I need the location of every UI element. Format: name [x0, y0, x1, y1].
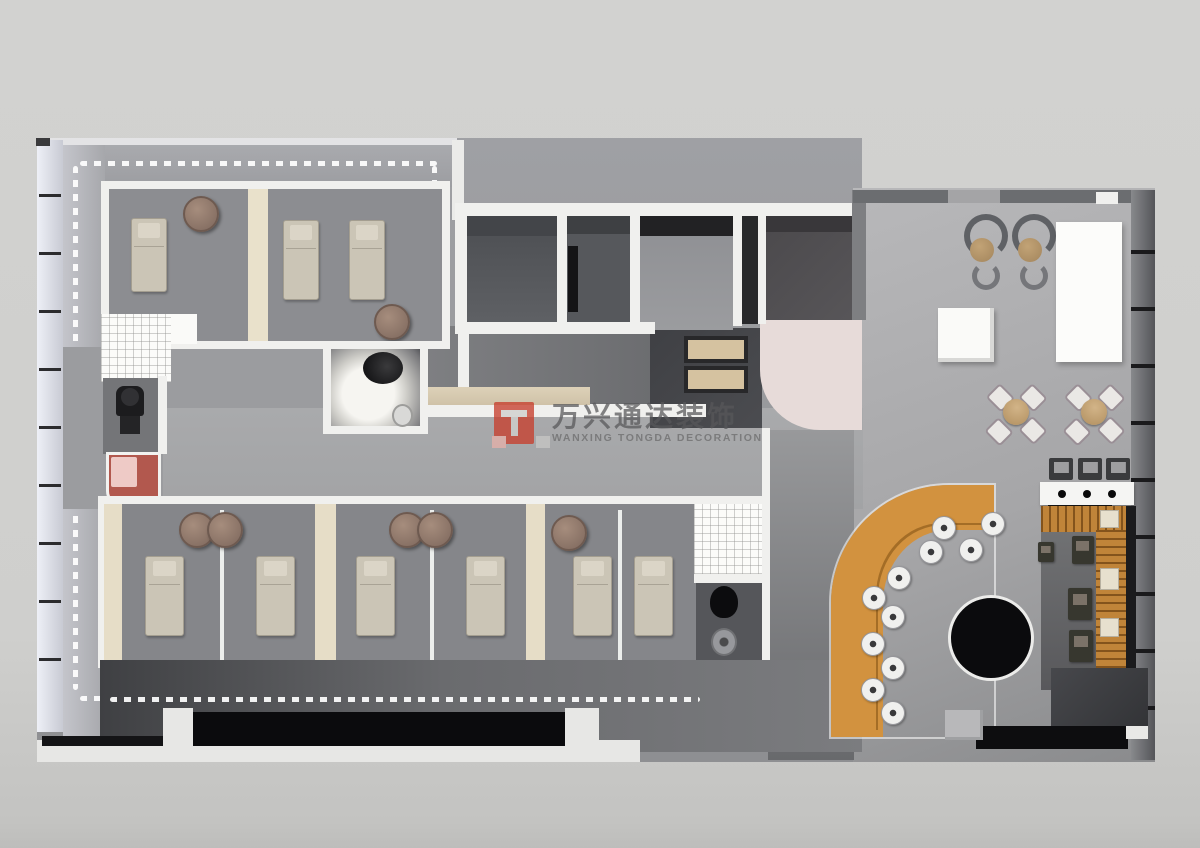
black-skirting	[42, 736, 164, 746]
tile-area	[694, 504, 762, 574]
booth-side-table	[862, 586, 886, 610]
stool	[207, 512, 243, 548]
bar-stool	[1106, 458, 1130, 480]
wall	[694, 574, 762, 583]
round-black-table	[948, 595, 1034, 681]
bar-seat	[1038, 542, 1054, 562]
red-desk-chair	[111, 457, 137, 487]
treatment-bed	[256, 556, 295, 636]
beige-column	[526, 504, 545, 660]
watermark: 万兴通达装饰 WANXING TONGDA DECORATION	[494, 402, 763, 444]
booth-side-table	[861, 632, 885, 656]
sink	[711, 628, 737, 656]
booth-side-table	[881, 701, 905, 725]
treatment-bed	[283, 220, 319, 300]
wall	[630, 216, 640, 330]
pendant-lamp	[363, 352, 403, 384]
tile-counter-ext	[171, 314, 197, 344]
office-chair-headrest	[121, 388, 139, 406]
led-strip-top	[80, 161, 437, 166]
bar-sink	[1108, 490, 1116, 498]
bar-mini-table	[1100, 510, 1119, 528]
lounge-chair-set	[1010, 214, 1054, 284]
gray-step	[945, 710, 983, 740]
bar-sink	[1058, 490, 1066, 498]
beige-column	[315, 504, 336, 660]
window-mullion-ticks-left	[39, 194, 61, 676]
booth-side-table	[959, 538, 983, 562]
tile-counter	[101, 314, 171, 382]
wall-post	[163, 708, 193, 754]
bar-seat	[1072, 536, 1094, 564]
side-ring-table	[972, 262, 1000, 290]
white-chip	[1126, 726, 1148, 739]
bar-seat	[1068, 588, 1092, 620]
watermark-logo-cut	[511, 410, 518, 436]
wall	[455, 322, 655, 334]
booth-side-table	[861, 678, 885, 702]
black-column	[742, 216, 758, 324]
watermark-subtitle: WANXING TONGDA DECORATION	[552, 432, 763, 444]
treatment-bed	[356, 556, 395, 636]
bar-back-strip	[1126, 506, 1136, 682]
recessed-niche	[193, 712, 565, 746]
booth-side-table	[881, 605, 905, 629]
reception-desk-white	[1056, 222, 1122, 362]
treatment-bed	[466, 556, 505, 636]
treatment-bed	[145, 556, 184, 636]
watermark-logo-chip	[492, 436, 506, 448]
gray-room-header	[640, 216, 733, 236]
chair-cushion	[970, 238, 994, 262]
partition-wall	[618, 510, 622, 660]
side-ring-table	[1020, 262, 1048, 290]
led-strip-bottom-band	[110, 697, 700, 702]
lounge-chair-set	[962, 214, 1006, 284]
washbasin	[392, 404, 413, 427]
wall	[455, 203, 467, 333]
black-platform-band	[976, 726, 1128, 749]
treatment-bed	[349, 220, 385, 300]
beige-column	[248, 189, 268, 341]
treatment-bed	[573, 556, 612, 636]
utility-room-header	[467, 216, 557, 236]
watermark-logo	[494, 402, 534, 444]
stool	[417, 512, 453, 548]
stool	[374, 304, 410, 340]
door-gap	[1096, 192, 1118, 204]
bar-mini-table	[1100, 618, 1119, 637]
booth-side-table	[881, 656, 905, 680]
section-divider-wall	[852, 190, 866, 320]
wall-corner-mark	[36, 138, 50, 146]
wall-post	[565, 708, 599, 754]
bar-stool	[1049, 458, 1073, 480]
bar-sink	[1083, 490, 1091, 498]
toilet	[710, 586, 738, 618]
stool	[183, 196, 219, 232]
dark-room-header	[766, 216, 852, 232]
beige-column	[104, 504, 122, 660]
bar-mini-table	[1100, 568, 1119, 590]
wardrobe	[568, 246, 578, 312]
treatment-bed	[131, 218, 167, 292]
wall	[158, 376, 167, 454]
booth-side-table	[932, 516, 956, 540]
wall	[758, 216, 766, 324]
wall	[557, 216, 567, 326]
watermark-title: 万兴通达装饰	[552, 402, 763, 432]
floorplan-render: 万兴通达装饰 WANXING TONGDA DECORATION	[0, 0, 1200, 848]
stool	[551, 515, 587, 551]
wall	[733, 216, 742, 326]
bar-stool	[1078, 458, 1102, 480]
chair-cushion	[1018, 238, 1042, 262]
booth-side-table	[981, 512, 1005, 536]
floor-mat	[684, 336, 748, 363]
square-table-white	[938, 308, 994, 362]
lounge-top-wall-light	[948, 190, 1000, 203]
top-outer-wall	[37, 138, 457, 145]
wall	[455, 203, 862, 216]
watermark-logo-chip2	[536, 436, 550, 448]
floor-mat	[684, 366, 748, 393]
treatment-bed	[634, 556, 673, 636]
bar-seat	[1069, 630, 1093, 662]
stage-platform	[1051, 668, 1148, 732]
bar-bench-wood	[1096, 530, 1128, 682]
utility-room-header	[567, 216, 630, 234]
booth-side-table	[887, 566, 911, 590]
booth-side-table	[919, 540, 943, 564]
